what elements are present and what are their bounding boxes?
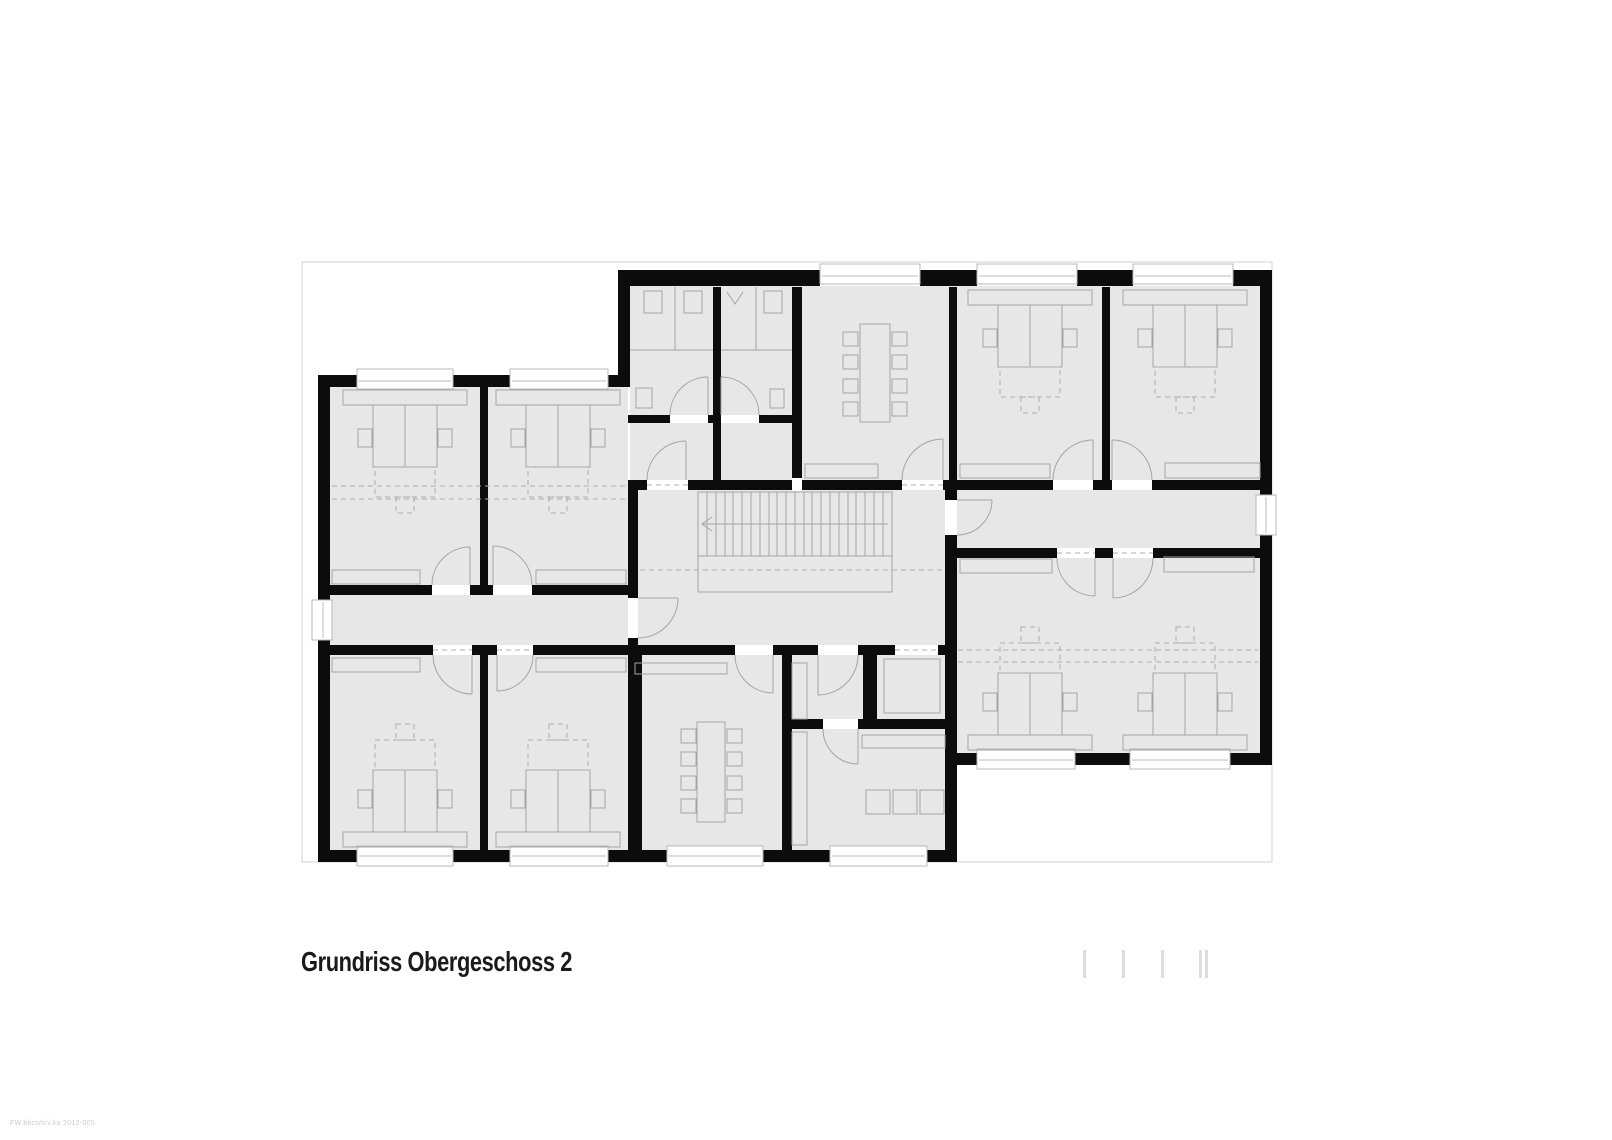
- window: [357, 846, 453, 866]
- scale-tick: [1161, 950, 1164, 978]
- fine-print: FW.bkcs/tcv.ka 2012-005: [10, 1120, 95, 1127]
- window: [820, 264, 920, 284]
- scale-tick: [1083, 950, 1086, 978]
- window: [510, 369, 608, 389]
- window: [1130, 749, 1230, 769]
- scale-tick: [1122, 950, 1125, 978]
- corridor-east-floor: [950, 490, 1260, 753]
- window: [977, 264, 1077, 284]
- scale-tick: [1205, 950, 1208, 978]
- window: [830, 846, 927, 866]
- window: [510, 846, 608, 866]
- window: [1256, 495, 1276, 535]
- window: [357, 369, 453, 389]
- meeting-table: [697, 722, 725, 822]
- floor-plan: [0, 0, 1612, 1140]
- scale-tick: [1199, 950, 1202, 978]
- plan-title: Grundriss Obergeschoss 2: [301, 946, 572, 978]
- window: [1133, 264, 1233, 284]
- window: [977, 749, 1075, 769]
- window: [312, 600, 332, 640]
- scale-bar: [1083, 950, 1208, 978]
- window: [667, 846, 763, 866]
- meeting-table: [860, 324, 890, 422]
- drawing-sheet: Grundriss Obergeschoss 2 FW.bkcs/tcv.ka …: [0, 0, 1612, 1140]
